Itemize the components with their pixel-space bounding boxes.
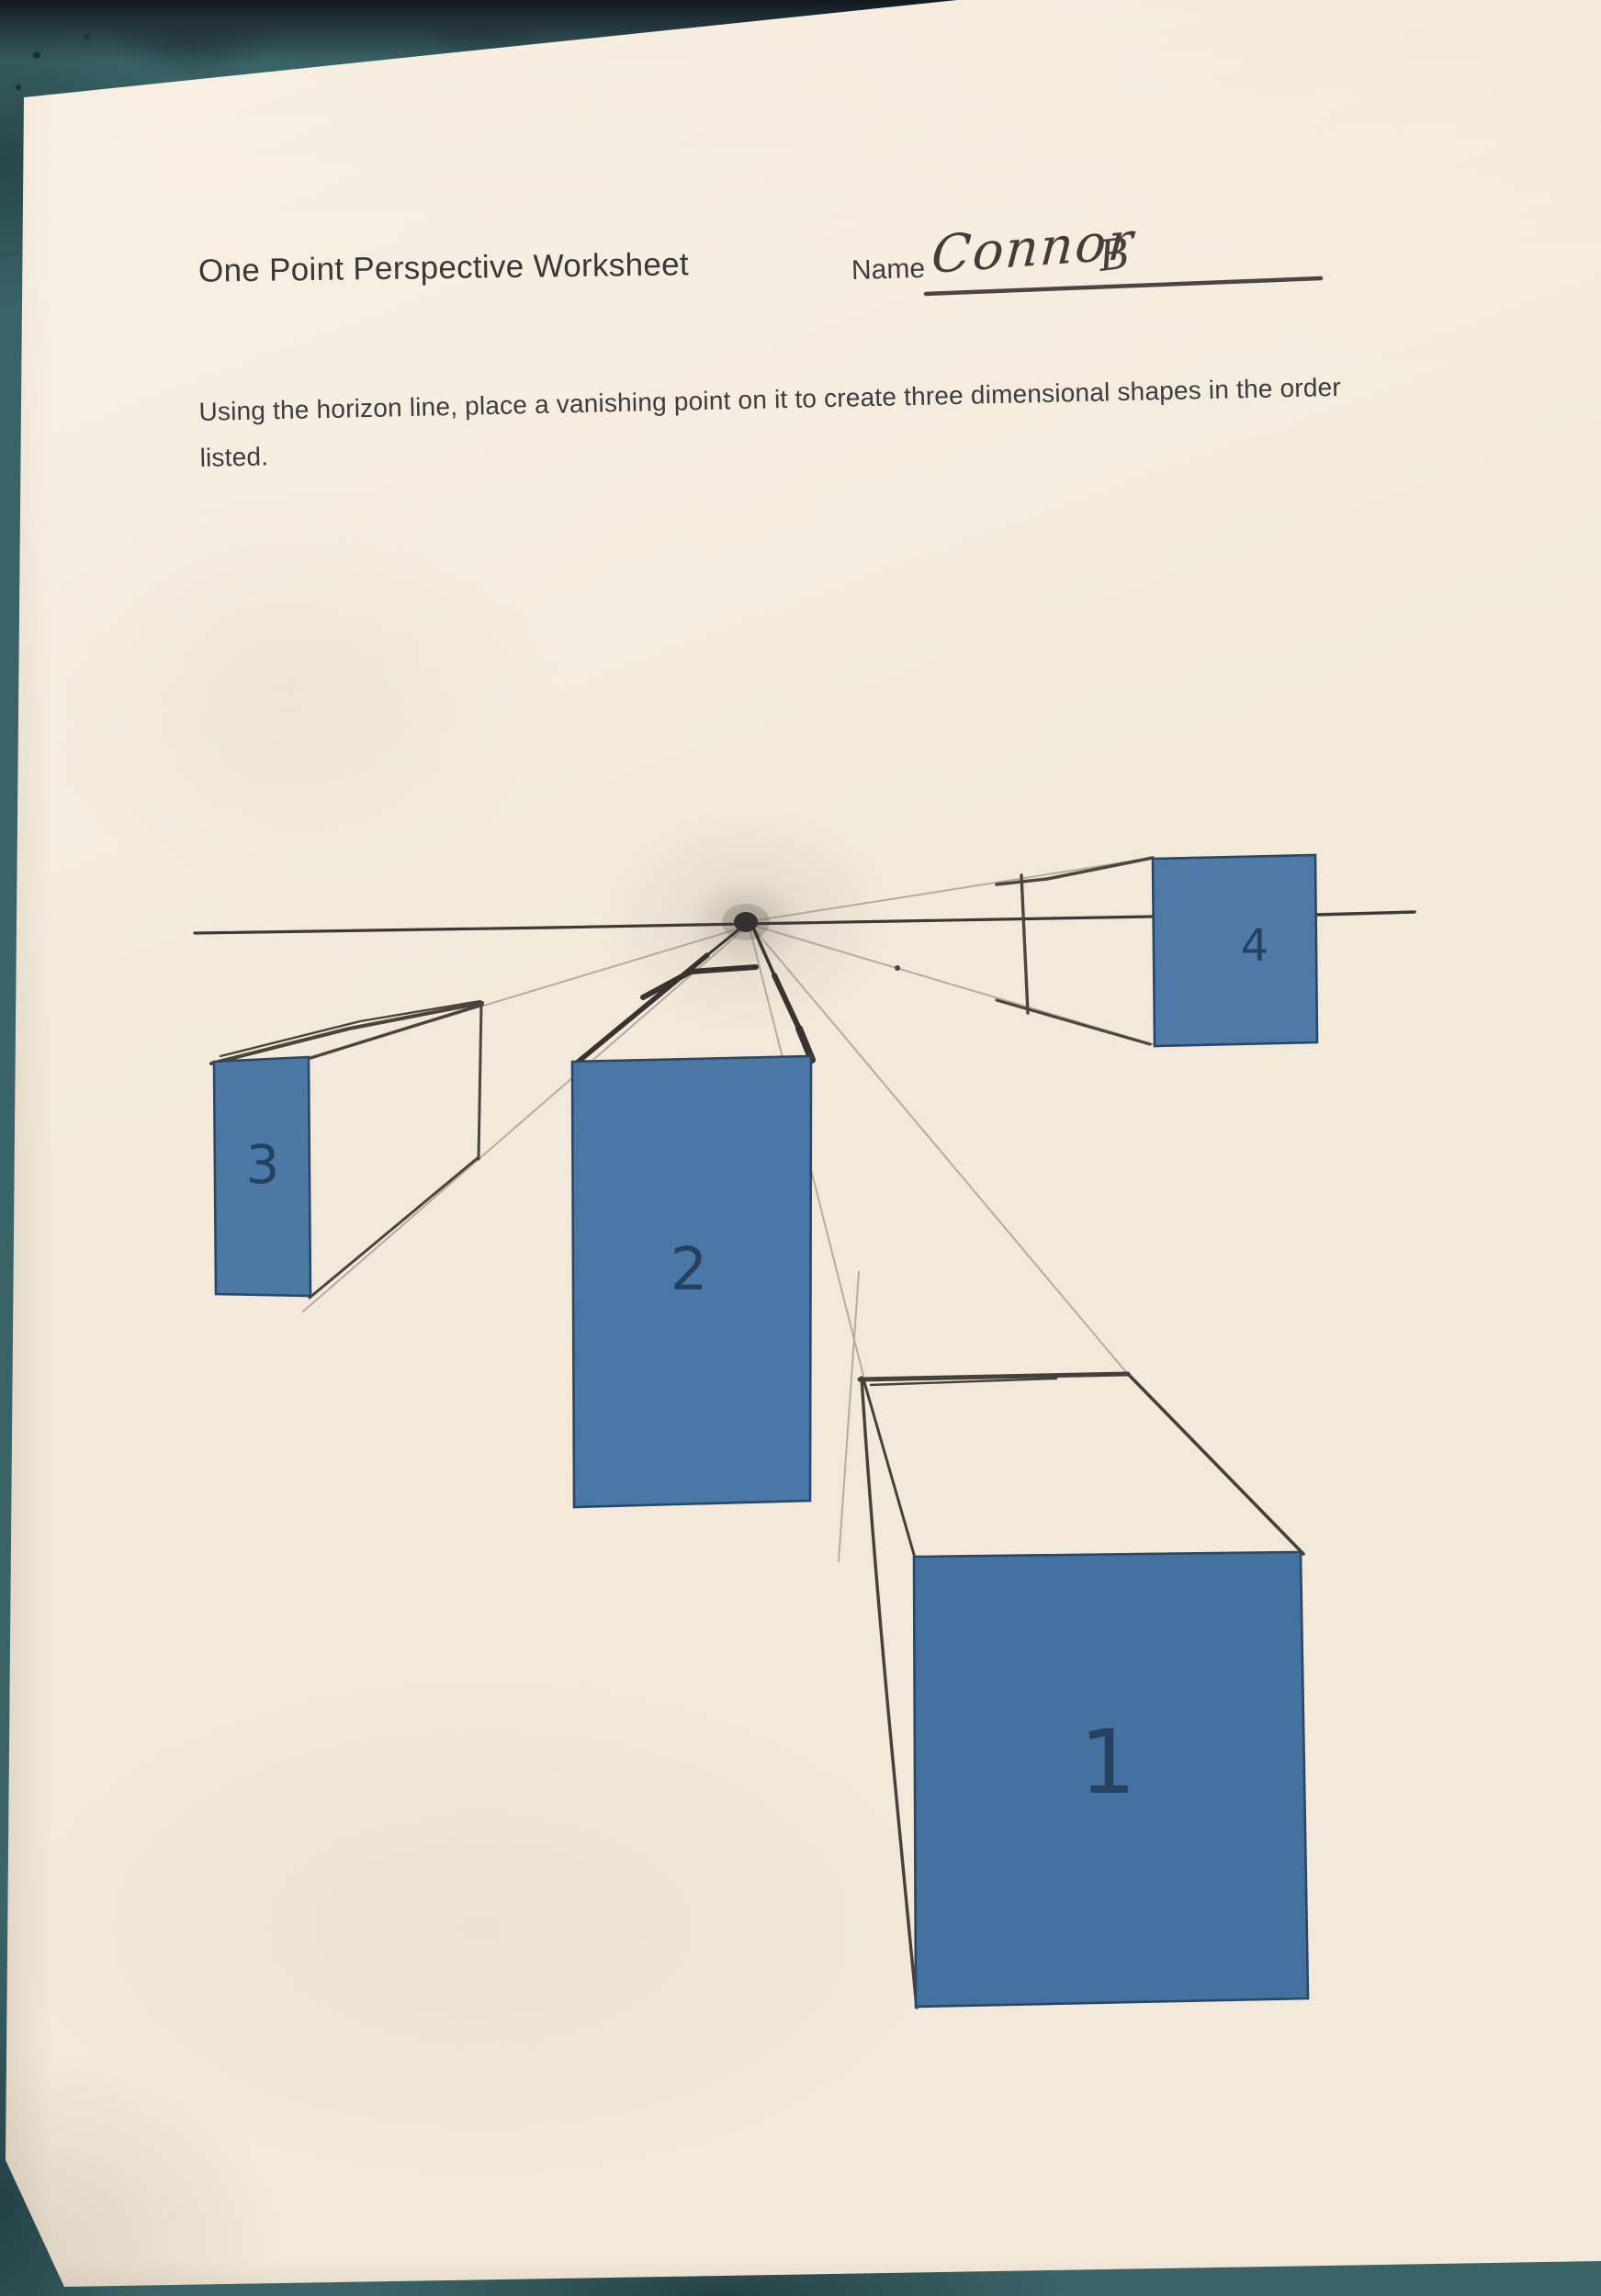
- blue-boxes: [214, 855, 1317, 2007]
- photo-of-worksheet: One Point Perspective Worksheet Name Con…: [0, 0, 1601, 2296]
- box-1-label: 1: [1079, 1711, 1135, 1814]
- box-3-label: 3: [246, 1133, 280, 1196]
- perspective-drawing: 1 2 3 4: [0, 0, 1601, 2296]
- box-2-label: 2: [671, 1236, 708, 1304]
- pencil-box4-construction: [997, 858, 1153, 1044]
- stray-pencil-dot: [895, 965, 900, 971]
- pencil-box2-heavy-rays: [576, 924, 812, 1064]
- name-underline: [926, 278, 1321, 294]
- box-4-label: 4: [1241, 920, 1269, 972]
- box-4-front-face: [1153, 855, 1317, 1046]
